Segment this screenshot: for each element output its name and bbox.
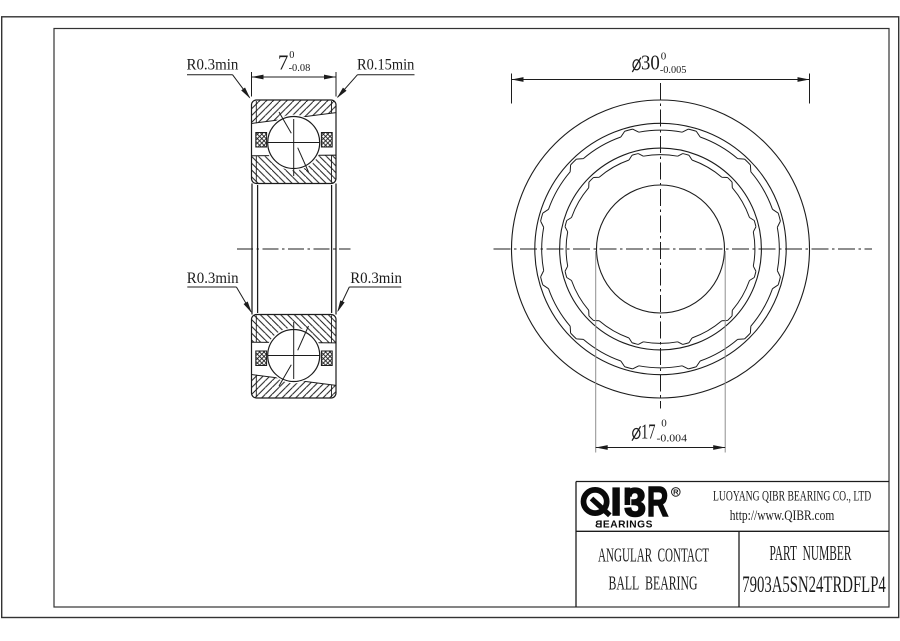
svg-text:7: 7 <box>278 50 289 74</box>
svg-text:R: R <box>673 488 679 497</box>
svg-text:-0.004: -0.004 <box>657 432 688 444</box>
svg-text:30: 30 <box>641 51 660 75</box>
svg-text:EARINGS: EARINGS <box>603 520 653 531</box>
svg-text:ANGULAR CONTACT: ANGULAR CONTACT <box>598 545 709 567</box>
svg-text:R0.3min: R0.3min <box>187 56 239 73</box>
svg-text:17: 17 <box>641 420 656 444</box>
svg-text:0: 0 <box>289 50 294 61</box>
svg-text:R0.15min: R0.15min <box>357 56 414 73</box>
svg-text:-0.08: -0.08 <box>289 63 311 74</box>
svg-text:B: B <box>595 520 602 531</box>
svg-text:BALL BEARING: BALL BEARING <box>609 573 698 595</box>
svg-text:R0.3min: R0.3min <box>350 270 402 287</box>
svg-text:LUOYANG QIBR BEARING CO., LTD: LUOYANG QIBR BEARING CO., LTD <box>713 488 871 504</box>
svg-text:0: 0 <box>661 418 667 430</box>
svg-text:R0.3min: R0.3min <box>187 270 239 287</box>
svg-text:7903A5SN24TRDFLP4: 7903A5SN24TRDFLP4 <box>742 572 886 598</box>
svg-text:R: R <box>647 478 669 525</box>
svg-text:http://www.QIBR.com: http://www.QIBR.com <box>730 508 835 524</box>
svg-text:0: 0 <box>661 51 667 63</box>
svg-text:-0.005: -0.005 <box>660 64 687 76</box>
svg-text:PART NUMBER: PART NUMBER <box>770 541 852 565</box>
